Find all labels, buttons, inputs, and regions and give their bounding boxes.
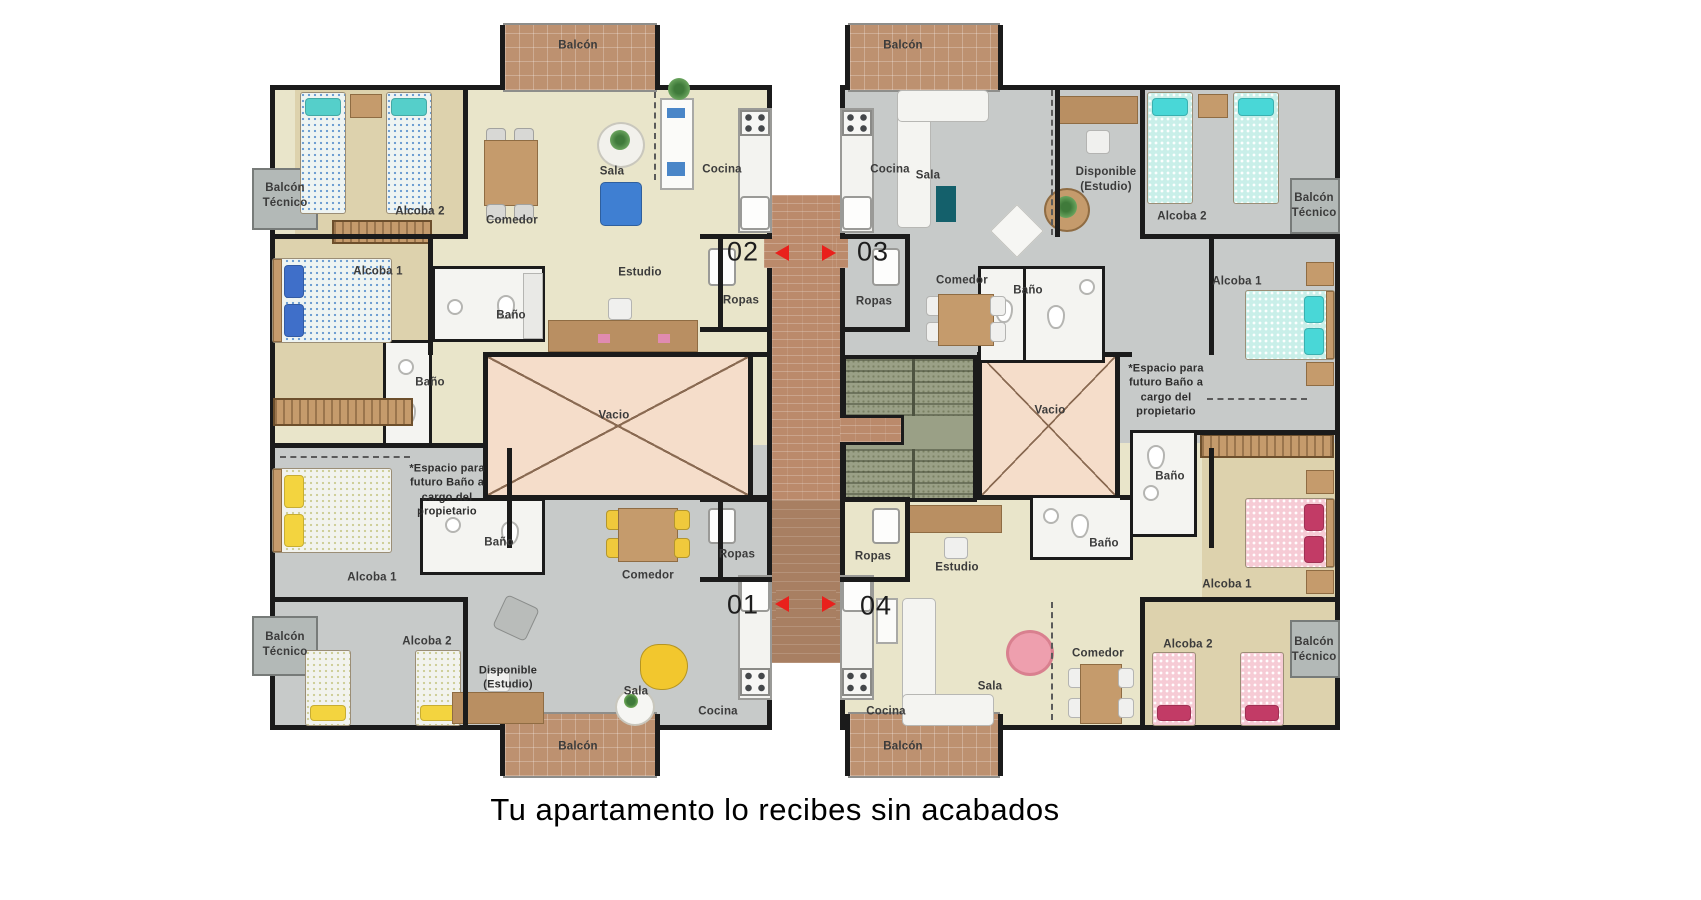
nightstand — [1306, 570, 1334, 594]
wall — [1209, 237, 1214, 355]
wall — [905, 500, 910, 580]
wall — [270, 443, 483, 448]
label-balcony-bottom-right: Balcón — [883, 740, 923, 755]
wall — [463, 600, 468, 730]
sink-icon — [447, 299, 463, 315]
desk-chair — [1086, 130, 1110, 154]
label-alcoba2-01: Alcoba 2 — [402, 635, 452, 650]
label-ropas-01: Ropas — [719, 548, 755, 563]
label-sala-04: Sala — [978, 680, 1002, 695]
wall — [700, 497, 772, 502]
toilet-icon — [1071, 514, 1089, 538]
stove-icon — [740, 668, 770, 696]
label-estudio-04: Estudio — [935, 561, 979, 576]
wall — [1055, 85, 1060, 237]
wall — [718, 237, 723, 330]
balcony-tl-wall-left — [500, 25, 505, 90]
nightstand — [1198, 94, 1228, 118]
closet — [273, 398, 413, 426]
wall — [840, 577, 910, 582]
sink-icon — [1143, 485, 1159, 501]
wall — [1120, 495, 1132, 500]
label-tech-balcony-bottom-left: Balcón Técnico — [263, 630, 308, 660]
label-sala-01: Sala — [624, 685, 648, 700]
desk-chair — [608, 298, 632, 320]
label-disponible-03: Disponible (Estudio) — [1076, 165, 1137, 195]
bed-double — [272, 468, 392, 553]
central-corridor — [772, 195, 840, 500]
wall — [428, 237, 433, 355]
plant-icon — [610, 130, 630, 150]
stair-divider2 — [912, 449, 915, 498]
balcony-br-wall-left — [845, 714, 850, 776]
wall — [463, 85, 468, 239]
label-sala-03: Sala — [916, 169, 940, 184]
label-disponible-01: Disponible (Estudio) — [479, 664, 537, 693]
desk-mat — [598, 334, 610, 343]
floor-plan-canvas: BalcónBalcónBalcónBalcónBalcón TécnicoBa… — [0, 0, 1701, 900]
wall — [1120, 352, 1132, 357]
vacio-right — [977, 352, 1120, 500]
label-alcoba2-03: Alcoba 2 — [1157, 210, 1207, 225]
fridge-icon — [842, 196, 872, 230]
desk — [1058, 96, 1138, 124]
label-bano-03: Baño — [1013, 284, 1043, 299]
stove-icon — [740, 110, 770, 136]
door-arrow-left-top — [775, 245, 789, 261]
label-tech-balcony-top-right: Balcón Técnico — [1292, 191, 1337, 221]
wall — [718, 500, 723, 580]
label-comedor-03: Comedor — [936, 274, 988, 289]
nightstand — [1306, 362, 1334, 386]
wall — [700, 327, 772, 332]
label-alcoba1-02: Alcoba 1 — [353, 265, 403, 280]
wall — [840, 497, 910, 502]
dining-set-04 — [1068, 662, 1134, 726]
label-alcoba1-03: Alcoba 1 — [1212, 275, 1262, 290]
dashed-line — [1051, 602, 1053, 720]
label-note-01: *Espacio para futuro Baño a cargo del pr… — [409, 461, 484, 518]
label-tech-balcony-bottom-right: Balcón Técnico — [1292, 635, 1337, 665]
fridge-icon — [740, 196, 770, 230]
label-comedor-01: Comedor — [622, 569, 674, 584]
tv-cabinet — [660, 98, 694, 190]
stair-entry-tongue — [840, 415, 904, 445]
bed-single — [1152, 652, 1196, 726]
wall — [700, 577, 772, 582]
stair-steps-upper — [846, 359, 973, 416]
desk-mat — [658, 334, 670, 343]
door-arrow-right-bottom — [822, 596, 836, 612]
stair-divider — [912, 359, 915, 416]
dashed-line — [280, 456, 410, 458]
central-corridor-lower — [772, 500, 840, 663]
door-arrow-left-bottom — [775, 596, 789, 612]
sink-icon — [398, 359, 414, 375]
label-estudio-02: Estudio — [618, 266, 662, 281]
bed-single — [1147, 92, 1193, 204]
label-comedor-04: Comedor — [1072, 647, 1124, 662]
sofa — [600, 182, 642, 226]
toilet-icon — [1147, 445, 1165, 469]
label-cocina-04: Cocina — [866, 705, 906, 720]
balcony-tl-wall-right — [655, 25, 660, 90]
label-vacio-right: Vacio — [1034, 404, 1065, 419]
wall — [1197, 430, 1340, 435]
sink-icon — [1079, 279, 1095, 295]
bed-single — [386, 92, 432, 214]
wall — [1140, 600, 1145, 730]
label-cocina-01: Cocina — [698, 705, 738, 720]
wall — [1140, 234, 1340, 239]
unit-number-03: 03 — [857, 237, 889, 268]
dashed-line — [1207, 398, 1307, 400]
label-bano2-02: Baño — [415, 376, 445, 391]
desk-chair — [944, 537, 968, 559]
label-note-03: *Espacio para futuro Baño a cargo del pr… — [1128, 361, 1203, 418]
balcony-br-wall-right — [998, 714, 1003, 776]
label-cocina-02: Cocina — [702, 163, 742, 178]
door-gap-03 — [836, 238, 848, 268]
plant-icon — [668, 78, 690, 100]
balcony-top-left — [505, 25, 655, 90]
wall — [270, 597, 468, 602]
label-bano1-02: Baño — [496, 309, 526, 324]
bathroom-02-second — [383, 340, 432, 448]
tv-console — [936, 186, 956, 222]
label-alcoba1-01: Alcoba 1 — [347, 571, 397, 586]
nightstand — [350, 94, 382, 118]
sink-icon — [445, 517, 461, 533]
label-balcony-bottom-left: Balcón — [558, 740, 598, 755]
label-bano1-04: Baño — [1155, 470, 1185, 485]
label-balcony-top-left: Balcón — [558, 39, 598, 54]
label-alcoba1-04: Alcoba 1 — [1202, 578, 1252, 593]
bed-single — [1240, 652, 1284, 726]
bed-double — [1245, 290, 1335, 360]
dashed-line — [654, 92, 656, 180]
closet — [332, 220, 432, 244]
bed-single — [305, 650, 351, 726]
washer-icon — [872, 508, 900, 544]
wall — [840, 327, 910, 332]
wall — [753, 352, 772, 357]
label-ropas-02: Ropas — [723, 294, 759, 309]
wall — [507, 448, 512, 548]
vacio-left — [483, 352, 753, 500]
dining-set-02 — [480, 128, 542, 220]
unit-number-02: 02 — [727, 237, 759, 268]
nightstand — [1306, 262, 1334, 286]
sink-icon — [1043, 508, 1059, 524]
door-arrow-right-top — [822, 245, 836, 261]
desk — [908, 505, 1002, 533]
dining-set-03 — [926, 290, 1006, 350]
balcony-tr-wall-left — [845, 25, 850, 90]
shower-icon — [523, 273, 543, 339]
label-vacio-left: Vacio — [598, 409, 629, 424]
dining-set-01 — [606, 506, 690, 564]
label-comedor-02: Comedor — [486, 214, 538, 229]
bathroom-02-main — [432, 266, 545, 342]
label-alcoba2-04: Alcoba 2 — [1163, 638, 1213, 653]
label-balcony-top-right: Balcón — [883, 39, 923, 54]
label-sala-02: Sala — [600, 165, 624, 180]
sofa-l-shape — [897, 90, 989, 122]
desk — [548, 320, 698, 352]
stove-icon — [842, 110, 872, 136]
label-bano-01: Baño — [484, 536, 514, 551]
balcony-tr-wall-right — [998, 25, 1003, 90]
wall — [1209, 448, 1214, 548]
label-alcoba2-02: Alcoba 2 — [395, 205, 445, 220]
bed-single — [1233, 92, 1279, 204]
stove-icon — [842, 668, 872, 696]
wall — [1140, 85, 1145, 237]
caption-text: Tu apartamento lo recibes sin acabados — [490, 792, 1059, 828]
papasan-chair — [1006, 630, 1054, 676]
label-cocina-03: Cocina — [870, 163, 910, 178]
label-ropas-04: Ropas — [855, 550, 891, 565]
label-bano2-04: Baño — [1089, 537, 1119, 552]
balcony-bl-wall-right — [655, 714, 660, 776]
stair-steps-lower — [846, 449, 973, 498]
sofa-l-shape — [902, 694, 994, 726]
balcony-top-right — [850, 25, 998, 90]
wall — [270, 234, 468, 239]
wall — [1140, 597, 1340, 602]
closet — [1200, 434, 1334, 458]
label-ropas-03: Ropas — [856, 295, 892, 310]
nightstand — [1306, 470, 1334, 494]
unit-number-01: 01 — [727, 590, 759, 621]
wall — [905, 237, 910, 330]
label-tech-balcony-top-left: Balcón Técnico — [263, 181, 308, 211]
unit-number-04: 04 — [860, 591, 892, 622]
toilet-icon — [1047, 305, 1065, 329]
dashed-line — [1051, 90, 1053, 235]
bed-double — [1245, 498, 1335, 568]
